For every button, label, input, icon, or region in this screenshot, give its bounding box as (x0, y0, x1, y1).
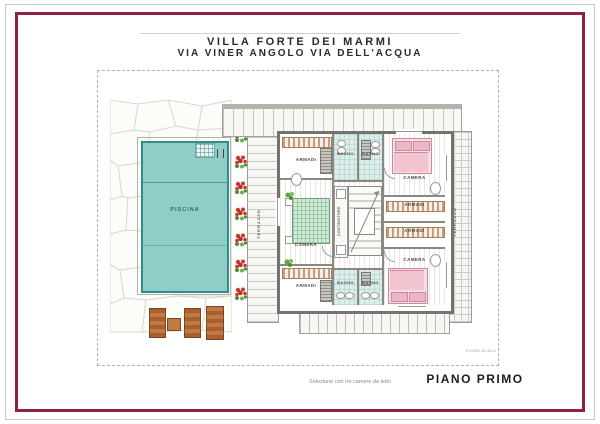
wall (280, 178, 332, 180)
sun-lounger (184, 308, 201, 338)
wall (357, 134, 359, 180)
room-label-camera: CAMERA (384, 258, 445, 263)
window (444, 262, 449, 288)
page-title: VILLA FORTE DEI MARMI (0, 36, 600, 48)
room-label-bagno: BAGNO (359, 152, 382, 156)
window (396, 129, 422, 134)
room-label-bagno: BAGNO (334, 281, 357, 285)
room-label-armadi: ARMADI (280, 284, 332, 289)
plan-name: PIANO PRIMO (420, 372, 530, 386)
window (275, 198, 280, 226)
room-label-bagno: BAGNO (359, 281, 382, 285)
wall (334, 268, 382, 270)
wall (384, 221, 445, 223)
toilet-icon (371, 141, 380, 148)
wall (382, 134, 384, 305)
room-label-bagno: BAGNO (334, 152, 357, 156)
bed-double-pink (388, 268, 428, 304)
pool-steps (195, 143, 215, 158)
wardrobe (282, 137, 332, 148)
sun-lounger (206, 306, 224, 340)
toilet-icon (361, 292, 370, 299)
swimming-pool: PISCINA (141, 141, 229, 293)
wall (357, 270, 359, 305)
room-label-camera: CAMERA (280, 243, 332, 248)
pool-lane-line (143, 182, 227, 183)
bed-double-pink (392, 138, 432, 174)
blanket (394, 152, 428, 172)
room-label-piscina: PISCINA (143, 207, 227, 213)
room-label-armadi: ARMADI (280, 158, 332, 163)
room-bagno-bottom-1 (334, 270, 357, 305)
room-label-terrazzo-left: TERRAZZO (256, 198, 261, 250)
room-label-armadi: ARMADI (384, 229, 445, 234)
pool-lane-line (143, 245, 227, 246)
armchair (291, 173, 302, 186)
terrace-left (247, 131, 279, 323)
pool-ladder-icon (217, 149, 224, 158)
sun-lounger (149, 308, 166, 338)
room-label-armadi: ARMADI (384, 203, 445, 208)
bed-double-green (292, 198, 330, 244)
floor-plan-sheet: VILLA FORTE DEI MARMI VIA VINER ANGOLO V… (0, 0, 600, 424)
title-divider-line (140, 33, 460, 34)
shower-unit (361, 140, 371, 160)
wall (334, 180, 382, 182)
wall (384, 247, 445, 249)
bidet-icon (370, 292, 379, 299)
room-label-camera: CAMERA (384, 176, 445, 181)
room-label-contenitore: CONTENITORE (337, 192, 341, 250)
toilet-icon (337, 140, 346, 147)
page-subtitle: VIA VINER ANGOLO VIA DELL'ACQUA (0, 48, 600, 59)
plant-icon (284, 257, 294, 267)
plant-icon (285, 190, 295, 200)
staircase (348, 186, 382, 256)
scale-note: FUORI SCALA (440, 348, 496, 353)
pillow (413, 141, 430, 151)
side-table (167, 318, 181, 331)
blanket (390, 270, 424, 290)
wardrobe (282, 268, 332, 279)
pillow (395, 141, 412, 151)
bidet-icon (345, 292, 354, 299)
pillow (409, 292, 426, 302)
pillow (391, 292, 408, 302)
toilet-icon (336, 292, 345, 299)
wall (384, 195, 445, 197)
armchair (430, 182, 441, 195)
window (398, 304, 426, 309)
